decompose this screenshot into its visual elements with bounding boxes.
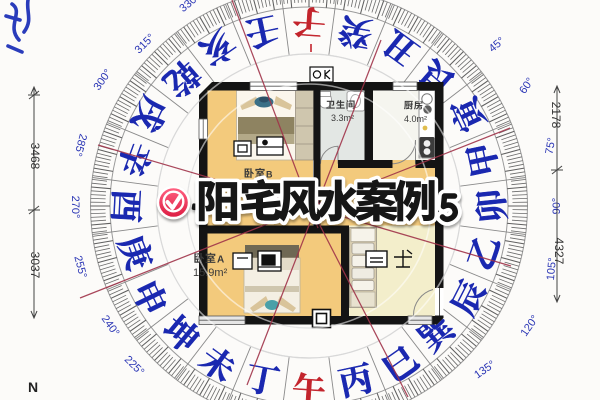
svg-text:B: B <box>266 170 273 180</box>
svg-text:3468: 3468 <box>28 143 42 170</box>
svg-text:3037: 3037 <box>28 252 42 279</box>
svg-text:4327: 4327 <box>552 238 566 265</box>
svg-text:A: A <box>217 255 224 266</box>
svg-text:270°: 270° <box>69 196 81 219</box>
svg-text:N: N <box>28 379 38 395</box>
svg-text:4.0m²: 4.0m² <box>404 114 427 124</box>
svg-text:2178: 2178 <box>549 102 563 129</box>
